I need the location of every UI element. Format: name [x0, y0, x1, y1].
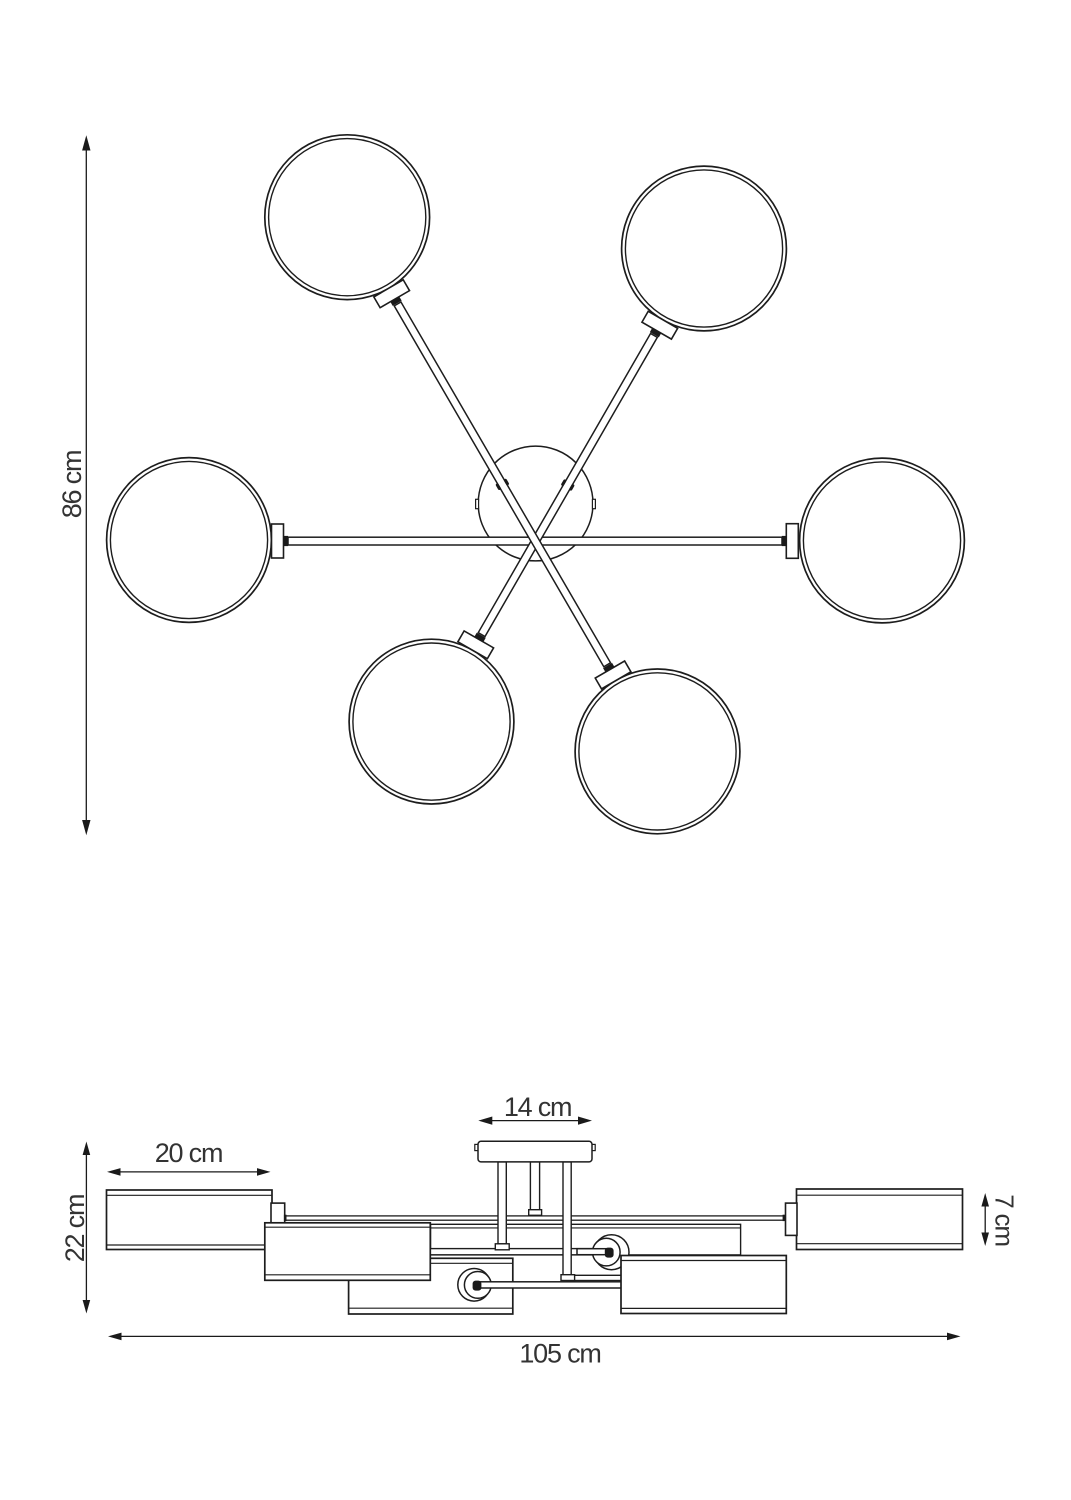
- svg-text:14 cm: 14 cm: [504, 1092, 572, 1122]
- svg-text:22 cm: 22 cm: [60, 1195, 90, 1263]
- svg-text:105 cm: 105 cm: [519, 1339, 600, 1369]
- svg-text:86 cm: 86 cm: [57, 451, 87, 519]
- svg-text:7 cm: 7 cm: [990, 1194, 1020, 1246]
- svg-text:20 cm: 20 cm: [155, 1138, 223, 1168]
